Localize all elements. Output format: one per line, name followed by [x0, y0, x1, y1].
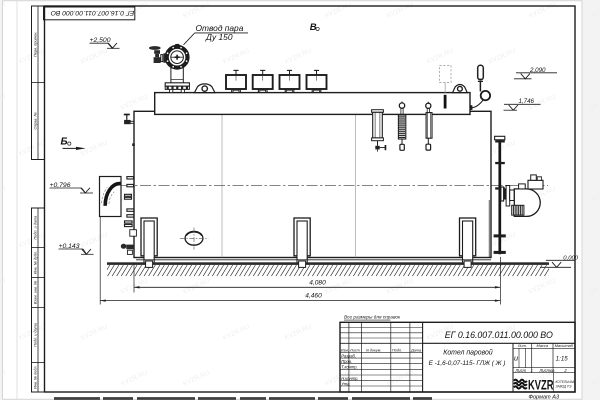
- svg-text:4,080: 4,080: [309, 279, 326, 286]
- svg-text:KVZR.RU: KVZR.RU: [590, 1, 600, 20]
- svg-text:и: и: [514, 354, 518, 363]
- svg-text:Изм.: Изм.: [341, 348, 349, 352]
- svg-text:Е -1,6-0,07-115- ГЛЖ ( Ж ): Е -1,6-0,07-115- ГЛЖ ( Ж ): [429, 360, 506, 367]
- svg-text:Пров.: Пров.: [341, 359, 352, 364]
- svg-text:Формат А3: Формат А3: [529, 394, 560, 400]
- svg-text:Подп. и дата: Подп. и дата: [34, 216, 38, 240]
- svg-text:1:15: 1:15: [556, 355, 569, 362]
- svg-text:N докум.: N докум.: [366, 348, 381, 352]
- svg-text:Подп.: Подп.: [392, 348, 402, 352]
- svg-text:4,460: 4,460: [305, 293, 322, 300]
- svg-text:Все размеры для справок: Все размеры для справок: [344, 315, 401, 320]
- svg-text:Справ. №: Справ. №: [34, 112, 38, 129]
- svg-text:Дата: Дата: [410, 348, 421, 352]
- svg-text:Подп. и дата: Подп. и дата: [34, 323, 38, 347]
- svg-text:Ду 150: Ду 150: [205, 32, 233, 42]
- svg-text:Лист: Лист: [515, 368, 527, 373]
- svg-text:Котел паровой: Котел паровой: [443, 348, 493, 356]
- svg-text:В: В: [310, 22, 317, 33]
- svg-text:1: 1: [531, 368, 533, 373]
- svg-text:Разраб.: Разраб.: [341, 354, 356, 359]
- svg-text:Листов: Листов: [539, 368, 556, 373]
- svg-text:KVZR.RU: KVZR.RU: [590, 277, 600, 296]
- svg-text:Взам. инв. №: Взам. инв. №: [34, 281, 38, 304]
- svg-text:Н.контр.: Н.контр.: [341, 376, 358, 381]
- svg-text:ЕГ 0.16.007.011.00.000 ВО: ЕГ 0.16.007.011.00.000 ВО: [50, 9, 134, 16]
- svg-text:Масштаб: Масштаб: [555, 343, 574, 348]
- svg-text:Б: Б: [61, 137, 68, 148]
- svg-text:КОТЕЛЬНЫЙ: КОТЕЛЬНЫЙ: [556, 380, 577, 384]
- svg-text:ЗАВОД РЭ: ЗАВОД РЭ: [556, 385, 573, 389]
- svg-text:Перв. примен.: Перв. примен.: [34, 32, 38, 57]
- svg-text:Лист: Лист: [349, 348, 360, 352]
- svg-text:Утв.: Утв.: [341, 381, 350, 386]
- svg-text:Лит.: Лит.: [517, 343, 527, 348]
- svg-text:KVZR.RU: KVZR.RU: [590, 369, 600, 388]
- svg-text:Масса: Масса: [537, 343, 549, 348]
- svg-text:Инв. № подл.: Инв. № подл.: [34, 365, 38, 389]
- svg-text:KVZR: KVZR: [528, 377, 554, 393]
- svg-text:KVZR.RU: KVZR.RU: [590, 185, 600, 204]
- svg-text:ЕГ 0.16.007.011.00.000 ВО: ЕГ 0.16.007.011.00.000 ВО: [445, 330, 553, 340]
- svg-text:Инв. № дубл.: Инв. № дубл.: [34, 251, 38, 274]
- svg-text:Т.контр.: Т.контр.: [341, 365, 358, 370]
- svg-text:KVZR.RU: KVZR.RU: [590, 93, 600, 112]
